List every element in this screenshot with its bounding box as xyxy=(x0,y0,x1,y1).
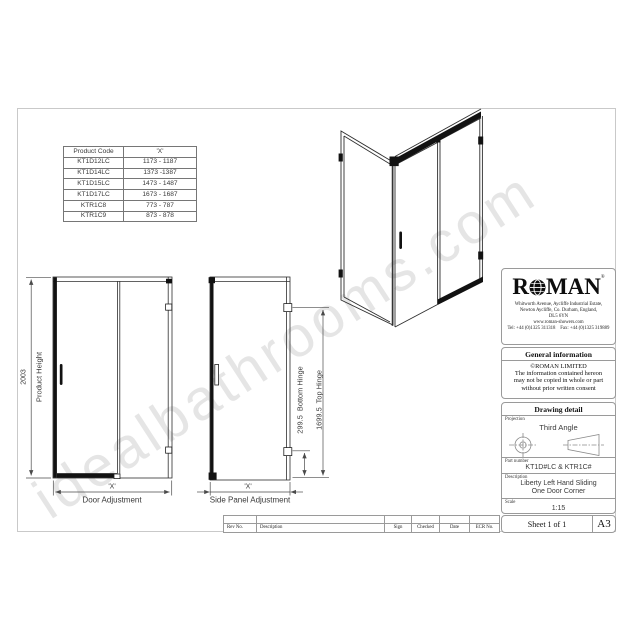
revision-empty-cell xyxy=(411,516,439,523)
revision-col-date: Date xyxy=(439,523,469,532)
table-header-row: Product Code 'X' xyxy=(64,147,197,158)
revision-empty-cell xyxy=(469,516,499,523)
third-angle-projection-icon xyxy=(502,432,615,460)
product-height-value: 2003 xyxy=(21,369,28,385)
projection-label: Projection xyxy=(502,416,615,422)
registered-mark: ® xyxy=(601,275,605,280)
notice-line: may not be copied in whole or part xyxy=(502,377,615,384)
side-panel-hinges xyxy=(215,304,292,456)
cell-code: KT1D14LC xyxy=(64,168,124,179)
door-elevation-brackets xyxy=(114,304,172,479)
tel-fax-text: Tel: +44 (0)1325 311318 Fax: +44 (0)1325… xyxy=(502,326,615,332)
revision-empty-cell xyxy=(256,516,384,523)
product-height-label: Product Height xyxy=(35,352,44,402)
drawing-detail-header: Drawing detail xyxy=(502,403,615,415)
door-elevation-drawing xyxy=(53,277,172,478)
revision-col-description: Description xyxy=(256,523,384,532)
revision-col-rev-no: Rev No. xyxy=(224,523,256,532)
cell-x: 1473 - 1487 xyxy=(124,179,197,190)
cell-code: KT1D15LC xyxy=(64,179,124,190)
sheet-number: Sheet 1 of 1 xyxy=(502,516,592,532)
drawing-sheet: idealbathrooms.com xyxy=(0,0,640,640)
notice-line: The information contained hereon xyxy=(502,370,615,377)
logo-address-box: R MAN ® Whitworth Avenue, Aycliffe Indus… xyxy=(501,268,616,345)
logo-text-r: R xyxy=(512,275,529,298)
product-code-table: Product Code 'X' KT1D12LC 1173 - 1187 KT… xyxy=(63,146,197,222)
cell-code: KTR1C8 xyxy=(64,200,124,211)
general-information-header: General information xyxy=(502,348,615,360)
revision-empty-cell xyxy=(384,516,411,523)
globe-icon xyxy=(529,279,546,296)
roman-logo: R MAN ® xyxy=(502,273,615,299)
description-value-line2: One Door Corner xyxy=(502,488,615,496)
door-x-dimension: 'X' xyxy=(108,484,115,491)
table-row: KT1D14LC 1373 -1387 xyxy=(64,168,197,179)
door-adjustment-label: Door Adjustment xyxy=(82,495,141,504)
projection-value: Third Angle xyxy=(502,423,615,432)
paper-size: A3 xyxy=(592,516,615,532)
table-row: KT1D12LC 1173 - 1187 xyxy=(64,157,197,168)
table-row: KT1D17LC 1673 - 1687 xyxy=(64,190,197,201)
cell-x: 1373 -1387 xyxy=(124,168,197,179)
top-hinge-icon xyxy=(284,304,292,312)
table-row: KT1D15LC 1473 - 1487 xyxy=(64,179,197,190)
cell-x: 1673 - 1687 xyxy=(124,190,197,201)
side-x-dimension: 'X' xyxy=(244,484,251,491)
logo-text-man: MAN xyxy=(546,275,601,298)
description-value-line1: Liberty Left Hand Sliding xyxy=(502,480,615,488)
revision-col-ecr-no: ECR No. xyxy=(469,523,499,532)
side-panel-adjustment-label: Side Panel Adjustment xyxy=(210,495,291,504)
revision-col-checked: Checked xyxy=(411,523,439,532)
cell-code: KT1D17LC xyxy=(64,190,124,201)
drawing-detail-box: Drawing detail Projection Third Angle Pa… xyxy=(501,402,616,514)
side-panel-handle-icon xyxy=(215,365,219,386)
col-header-x: 'X' xyxy=(124,147,197,158)
part-number-value: KT1D#LC & KTR1C# xyxy=(502,464,615,471)
cell-x: 1173 - 1187 xyxy=(124,157,197,168)
revision-empty-cell xyxy=(439,516,469,523)
cell-code: KTR1C9 xyxy=(64,211,124,222)
isometric-frames xyxy=(339,112,484,306)
top-hinge-dimension: 1699.5 Top Hinge xyxy=(314,370,323,430)
copyright-line: ©ROMAN LIMITED xyxy=(502,363,615,370)
side-panel-elevation-drawing xyxy=(210,277,290,480)
table-row: KTR1C9 873 - 878 xyxy=(64,211,197,222)
revision-table: Rev No. Description Sign Checked Date EC… xyxy=(223,515,500,533)
isometric-view-drawing xyxy=(341,109,482,327)
general-information-box: General information ©ROMAN LIMITED The i… xyxy=(501,347,616,399)
col-header-product-code: Product Code xyxy=(64,147,124,158)
bottom-hinge-dimension: 299.5 Bottom Hinge xyxy=(296,366,305,433)
notice-line: without prior written consent xyxy=(502,385,615,392)
scale-section: Scale 1:15 xyxy=(502,499,615,512)
revision-empty-cell xyxy=(224,516,256,523)
iso-door-handle-icon xyxy=(399,232,402,250)
projection-section: Projection Third Angle xyxy=(502,416,615,457)
revision-col-sign: Sign xyxy=(384,523,411,532)
table-row: KTR1C8 773 - 787 xyxy=(64,200,197,211)
sheet-size-box: Sheet 1 of 1 A3 xyxy=(501,515,616,533)
description-section: Description Liberty Left Hand Sliding On… xyxy=(502,474,615,496)
door-handle-icon xyxy=(60,364,63,385)
cell-code: KT1D12LC xyxy=(64,157,124,168)
bottom-hinge-icon xyxy=(284,448,292,456)
door-elevation-frames xyxy=(53,277,172,478)
scale-value: 1:15 xyxy=(502,505,615,512)
cell-x: 773 - 787 xyxy=(124,200,197,211)
cell-x: 873 - 878 xyxy=(124,211,197,222)
